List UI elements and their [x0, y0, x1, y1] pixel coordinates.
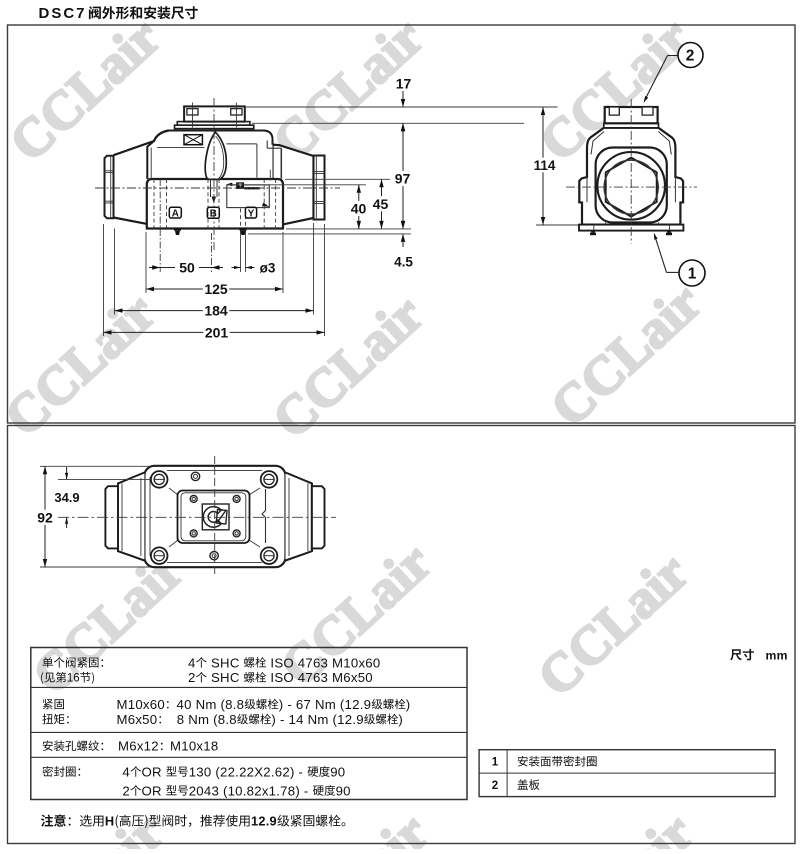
- svg-text:Y: Y: [248, 208, 255, 219]
- svg-text:ISO 4763 M6x50: ISO 4763 M6x50: [267, 670, 373, 685]
- svg-text:SHC: SHC: [207, 655, 243, 670]
- svg-text:45: 45: [373, 196, 389, 212]
- svg-text:M6x50: M6x50: [117, 712, 158, 727]
- svg-text:50: 50: [179, 260, 195, 276]
- svg-text:ø3: ø3: [260, 260, 276, 275]
- svg-text:mm: mm: [766, 648, 788, 662]
- svg-text:4: 4: [122, 764, 130, 779]
- svg-text:90: 90: [336, 783, 351, 798]
- svg-text:2043 (10.82x1.78) -: 2043 (10.82x1.78) -: [189, 783, 313, 798]
- svg-text:4: 4: [188, 655, 196, 670]
- svg-text:1: 1: [492, 757, 499, 769]
- svg-text:A: A: [172, 208, 179, 219]
- svg-text:8 Nm (8.8: 8 Nm (8.8: [169, 712, 237, 727]
- svg-text:114: 114: [534, 158, 556, 173]
- svg-text:M10x60: M10x60: [117, 697, 165, 712]
- svg-text:1: 1: [688, 266, 697, 283]
- svg-text:) - 14 Nm (12.9: ) - 14 Nm (12.9: [271, 712, 363, 727]
- svg-text:125: 125: [204, 281, 228, 297]
- svg-text:17: 17: [396, 76, 412, 92]
- svg-text:SHC: SHC: [207, 670, 243, 685]
- svg-text:2: 2: [188, 670, 196, 685]
- svg-text:ISO 4763 M10x60: ISO 4763 M10x60: [267, 655, 381, 670]
- svg-text:OR: OR: [142, 783, 166, 798]
- svg-text:) - 67 Nm (12.9: ) - 67 Nm (12.9: [279, 697, 371, 712]
- svg-text:): ): [398, 712, 403, 727]
- svg-text:34.9: 34.9: [54, 490, 79, 505]
- svg-text:DSC7: DSC7: [39, 5, 87, 22]
- svg-text:201: 201: [205, 324, 229, 340]
- svg-text:16: 16: [67, 673, 80, 685]
- svg-text:12.9: 12.9: [251, 814, 277, 829]
- svg-text:2: 2: [122, 783, 130, 798]
- svg-text:130 (22.22X2.62) -: 130 (22.22X2.62) -: [189, 764, 307, 779]
- svg-text:90: 90: [330, 764, 345, 779]
- svg-text:2: 2: [686, 47, 695, 64]
- svg-text:2: 2: [492, 780, 498, 792]
- svg-text:184: 184: [204, 303, 228, 319]
- svg-text:4.5: 4.5: [394, 254, 413, 269]
- svg-text:40 Nm (8.8: 40 Nm (8.8: [177, 697, 245, 712]
- svg-text:M10x18: M10x18: [170, 739, 218, 754]
- svg-text:B: B: [210, 208, 217, 219]
- svg-text:H: H: [105, 814, 115, 829]
- svg-text:97: 97: [395, 171, 411, 187]
- svg-text:40: 40: [351, 201, 367, 217]
- svg-text:M6x12: M6x12: [118, 739, 159, 754]
- svg-text:): ): [406, 697, 411, 712]
- svg-text:92: 92: [37, 509, 53, 525]
- svg-text:OR: OR: [142, 764, 166, 779]
